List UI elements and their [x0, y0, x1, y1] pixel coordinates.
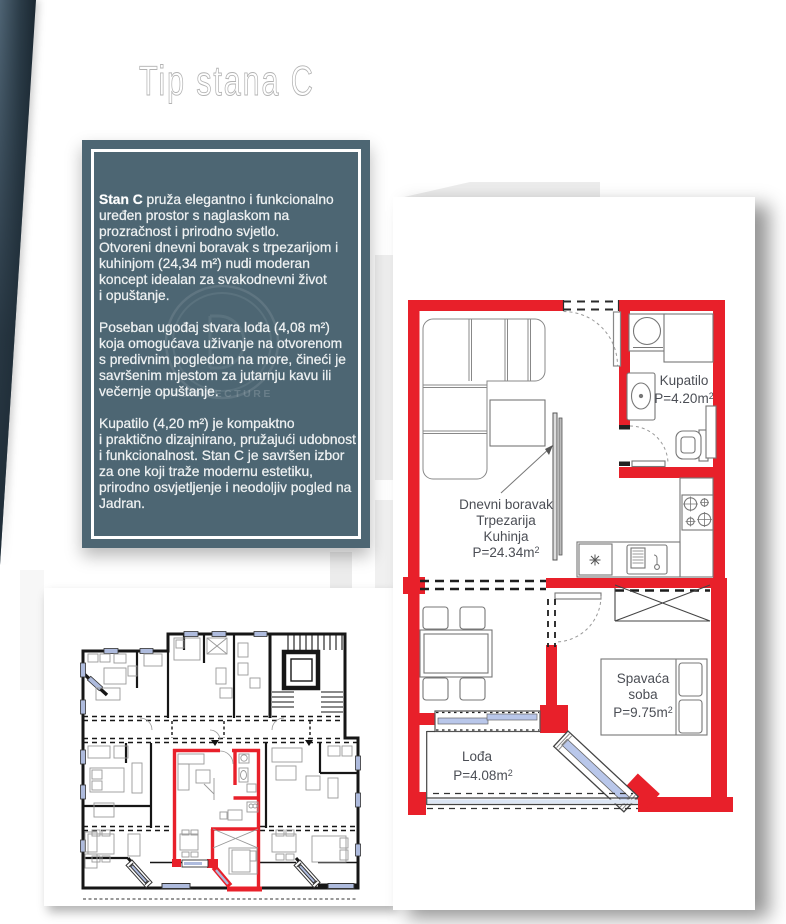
svg-text:Kuhinja: Kuhinja	[483, 529, 529, 544]
svg-text:Dnevni boravak: Dnevni boravak	[459, 497, 553, 512]
svg-text:P=4.08m2: P=4.08m2	[453, 768, 512, 783]
svg-text:Lođa: Lođa	[462, 749, 493, 764]
svg-text:Kupatilo: Kupatilo	[660, 373, 709, 388]
svg-text:P=4.20m2: P=4.20m2	[654, 391, 713, 406]
svg-text:Spavaća: Spavaća	[617, 671, 670, 686]
svg-text:soba: soba	[628, 687, 658, 702]
svg-text:P=9.75m2: P=9.75m2	[613, 705, 672, 720]
svg-text:P=24.34m2: P=24.34m2	[473, 545, 540, 560]
svg-text:Trpezarija: Trpezarija	[476, 513, 536, 528]
